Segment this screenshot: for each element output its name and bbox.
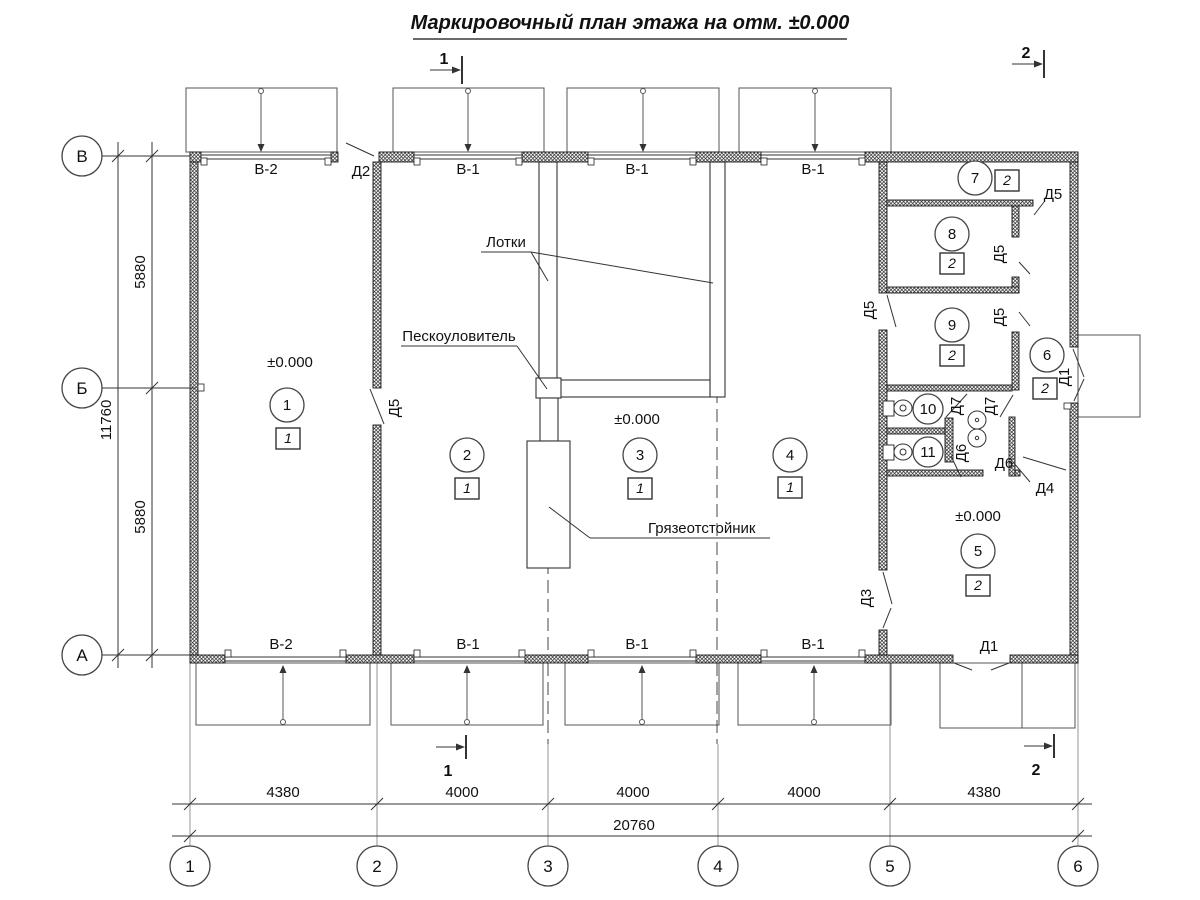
door-label: Д7 bbox=[948, 397, 965, 416]
axis-number: 6 bbox=[1073, 857, 1082, 876]
section-arrowhead bbox=[1044, 743, 1053, 750]
room-number: 6 bbox=[1043, 347, 1051, 364]
section-label: 1 bbox=[444, 763, 453, 780]
door-leaf-d5 bbox=[1019, 262, 1030, 274]
door-leaf-d5 bbox=[370, 389, 384, 424]
drainage-system bbox=[527, 162, 725, 568]
window-jamb bbox=[225, 650, 231, 657]
gate-pivot bbox=[281, 720, 286, 725]
window-jamb bbox=[516, 158, 522, 165]
wall-room9-right bbox=[1012, 332, 1019, 390]
gate-label: В-1 bbox=[801, 636, 824, 653]
room-number: 9 bbox=[948, 317, 956, 334]
section-arrowhead bbox=[456, 744, 465, 751]
door-label: Д1 bbox=[1056, 368, 1073, 387]
window-jamb bbox=[690, 650, 696, 657]
door-label: Д5 bbox=[861, 301, 878, 320]
drawing-title: Маркировочный план этажа на отм. ±0.000 bbox=[411, 12, 850, 39]
room-type: 2 bbox=[947, 255, 956, 271]
door-label: Д5 bbox=[991, 308, 1008, 327]
title-text: Маркировочный план этажа на отм. ±0.000 bbox=[411, 12, 850, 34]
toilet-bowl-detail bbox=[900, 449, 906, 455]
room-type: 1 bbox=[463, 480, 471, 496]
wall-basin-stub bbox=[945, 418, 953, 462]
tray-right bbox=[710, 162, 725, 397]
section-mark-2-bottom: 2 bbox=[1024, 734, 1054, 779]
floor-plan-drawing: Маркировочный план этажа на отм. ±0.000 … bbox=[0, 0, 1200, 900]
room-type: 1 bbox=[636, 480, 644, 496]
room-number: 5 bbox=[974, 543, 982, 560]
section-label: 1 bbox=[440, 51, 449, 68]
door-leaf-d7 bbox=[1000, 395, 1013, 417]
tray-neck bbox=[540, 398, 558, 441]
wall-pier bbox=[190, 655, 225, 663]
dim-value: 4000 bbox=[445, 784, 478, 801]
section-mark-2-top: 2 bbox=[1012, 45, 1044, 78]
wall-top-right bbox=[865, 152, 1078, 162]
door-leaf-d1 bbox=[1074, 379, 1084, 401]
room-number: 7 bbox=[971, 170, 979, 187]
wall-axis5-upper bbox=[879, 162, 887, 293]
gate-pivot bbox=[812, 720, 817, 725]
wall-tab bbox=[198, 384, 204, 391]
door-label: Д1 bbox=[980, 638, 999, 655]
door-label: Д7 bbox=[982, 397, 999, 416]
gate-label: В-1 bbox=[625, 636, 648, 653]
dim-value: 4000 bbox=[616, 784, 649, 801]
tray-horizontal bbox=[557, 380, 710, 397]
toilet-tank bbox=[883, 401, 894, 416]
axis-number: 1 bbox=[185, 857, 194, 876]
door-label: Д5 bbox=[386, 399, 403, 418]
door-leaf-d5 bbox=[1019, 312, 1030, 326]
room-type: 2 bbox=[1002, 172, 1011, 188]
bottom-dimensions: 4380 4000 4000 4000 4380 20760 1 2 3 4 5… bbox=[170, 784, 1098, 886]
axis-number: 5 bbox=[885, 857, 894, 876]
elevation-label: ±0.000 bbox=[614, 411, 660, 428]
wall-under-room7 bbox=[887, 200, 1033, 206]
door-label: Д6 bbox=[953, 444, 970, 463]
section-label: 2 bbox=[1032, 762, 1041, 779]
gate-arrowhead bbox=[280, 665, 287, 673]
wall-tab bbox=[1064, 403, 1071, 409]
annotation-leader bbox=[531, 252, 713, 283]
toilet-bowl-detail bbox=[900, 405, 906, 411]
gate-arrowhead bbox=[811, 665, 818, 673]
section-mark-1-top: 1 bbox=[430, 51, 462, 84]
gate-arrowhead bbox=[639, 665, 646, 673]
wall-under-room8 bbox=[887, 287, 1019, 293]
dim-total: 20760 bbox=[613, 817, 655, 834]
gate-label: В-1 bbox=[625, 161, 648, 178]
door-leaf-d2 bbox=[346, 143, 374, 156]
annotation-mud-settler: Грязеотстойник bbox=[648, 520, 756, 537]
door-label: Д3 bbox=[858, 589, 875, 608]
elevation-label: ±0.000 bbox=[955, 508, 1001, 525]
gate-pivot bbox=[466, 89, 471, 94]
dim-value: 5880 bbox=[132, 255, 149, 288]
window-jamb bbox=[519, 650, 525, 657]
wall-pier bbox=[865, 655, 953, 663]
door-label: Д5 bbox=[1044, 186, 1063, 203]
annotation-sand-trap: Пескоуловитель bbox=[402, 328, 516, 345]
room-number: 10 bbox=[920, 401, 937, 418]
window-jamb bbox=[690, 158, 696, 165]
dim-value: 4380 bbox=[967, 784, 1000, 801]
wall-under-room9 bbox=[887, 385, 1012, 391]
room-number: 11 bbox=[920, 444, 936, 461]
gate-label: В-2 bbox=[254, 161, 277, 178]
gate-label: В-1 bbox=[801, 161, 824, 178]
gate-label: В-1 bbox=[456, 636, 479, 653]
window-jamb bbox=[414, 158, 420, 165]
gate-arrowhead bbox=[465, 144, 472, 152]
door-leaf-d1 bbox=[991, 663, 1009, 670]
wall-pier bbox=[1010, 655, 1078, 663]
axis-number: 2 bbox=[372, 857, 381, 876]
section-arrowhead bbox=[1034, 61, 1043, 68]
sand-trap-box bbox=[536, 378, 561, 398]
room-number: 1 bbox=[283, 397, 291, 414]
door-label: Д5 bbox=[991, 245, 1008, 264]
gate-arrowhead bbox=[812, 144, 819, 152]
wall-pier bbox=[522, 152, 588, 162]
window-jamb bbox=[761, 650, 767, 657]
dim-value: 5880 bbox=[132, 500, 149, 533]
wall-pier bbox=[379, 152, 414, 162]
gate-label: В-1 bbox=[456, 161, 479, 178]
window-jamb bbox=[761, 158, 767, 165]
toilet-tank bbox=[883, 445, 894, 460]
washbasin-drain bbox=[975, 418, 978, 421]
wall-pier bbox=[696, 655, 761, 663]
window-jamb bbox=[201, 158, 207, 165]
door-leader-d5 bbox=[1034, 202, 1044, 215]
room-type: 2 bbox=[973, 577, 982, 593]
wall-pier bbox=[190, 152, 201, 162]
gate-arrowhead bbox=[258, 144, 265, 152]
room-type: 1 bbox=[786, 479, 794, 495]
door-leaf-d1 bbox=[954, 663, 972, 670]
door-leaf-d3 bbox=[883, 608, 891, 628]
gate-arrowhead bbox=[464, 665, 471, 673]
window-jamb bbox=[588, 650, 594, 657]
wall-under-room10 bbox=[887, 428, 945, 434]
wall-pier bbox=[346, 655, 414, 663]
section-mark-1-bottom: 1 bbox=[436, 735, 466, 780]
axis-letter: А bbox=[76, 646, 88, 665]
door-leaf-d3 bbox=[883, 572, 892, 604]
door-leaf-d4 bbox=[1023, 457, 1066, 470]
elevation-label: ±0.000 bbox=[267, 354, 313, 371]
door-label: Д4 bbox=[1036, 480, 1055, 497]
window-jamb bbox=[340, 650, 346, 657]
dim-value: 4000 bbox=[787, 784, 820, 801]
porch-bottom-right bbox=[940, 663, 1075, 728]
window-jamb bbox=[859, 158, 865, 165]
window-jamb bbox=[588, 158, 594, 165]
wall-pier bbox=[331, 152, 338, 162]
gate-label: В-2 bbox=[269, 636, 292, 653]
gate-pivot bbox=[641, 89, 646, 94]
gate-pivot bbox=[640, 720, 645, 725]
gate-swing-zones-top bbox=[186, 88, 891, 152]
window-jamb bbox=[414, 650, 420, 657]
gate-arrowhead bbox=[640, 144, 647, 152]
washbasin-drain bbox=[975, 436, 978, 439]
wall-axis2-lower bbox=[373, 425, 381, 655]
room-type: 2 bbox=[947, 347, 956, 363]
wall-axis2-upper bbox=[373, 162, 381, 388]
section-arrowhead bbox=[452, 67, 461, 74]
gate-pivot bbox=[259, 89, 264, 94]
door-label: Д2 bbox=[352, 163, 371, 180]
room-number: 3 bbox=[636, 447, 644, 464]
floor-plan-page: Маркировочный план этажа на отм. ±0.000 … bbox=[0, 0, 1200, 900]
axis-letter: В bbox=[76, 147, 87, 166]
room-number: 2 bbox=[463, 447, 471, 464]
wall-pier bbox=[696, 152, 761, 162]
section-label: 2 bbox=[1022, 45, 1031, 62]
dim-value: 11760 bbox=[98, 400, 115, 441]
mud-settler-box bbox=[527, 441, 570, 568]
window-jamb bbox=[325, 158, 331, 165]
left-dimensions: 5880 11760 5880 В Б А bbox=[62, 136, 196, 675]
room-type: 1 bbox=[284, 430, 292, 446]
wall-pier bbox=[525, 655, 588, 663]
axis-letter: Б bbox=[76, 379, 87, 398]
wall-right-lower bbox=[1070, 403, 1078, 663]
axis-number: 4 bbox=[713, 857, 722, 876]
annotation-trays: Лотки bbox=[486, 234, 526, 251]
door-leaf-d5 bbox=[887, 295, 896, 327]
wall-left bbox=[190, 152, 198, 663]
room-number: 4 bbox=[786, 447, 794, 464]
wall-right-upper bbox=[1070, 152, 1078, 347]
gate-swing-zones-bottom bbox=[196, 663, 891, 725]
wall-under-room11 bbox=[887, 470, 983, 476]
wall-room8-right-a bbox=[1012, 206, 1019, 237]
dim-value: 4380 bbox=[266, 784, 299, 801]
wall-axis5-stub bbox=[879, 630, 887, 655]
axis-number: 3 bbox=[543, 857, 552, 876]
gate-pivot bbox=[813, 89, 818, 94]
room-number: 8 bbox=[948, 226, 956, 243]
gate-pivot bbox=[465, 720, 470, 725]
room-type: 2 bbox=[1040, 380, 1049, 396]
door-label: Д6 bbox=[995, 455, 1014, 472]
porch-right bbox=[1078, 335, 1140, 417]
window-jamb bbox=[859, 650, 865, 657]
